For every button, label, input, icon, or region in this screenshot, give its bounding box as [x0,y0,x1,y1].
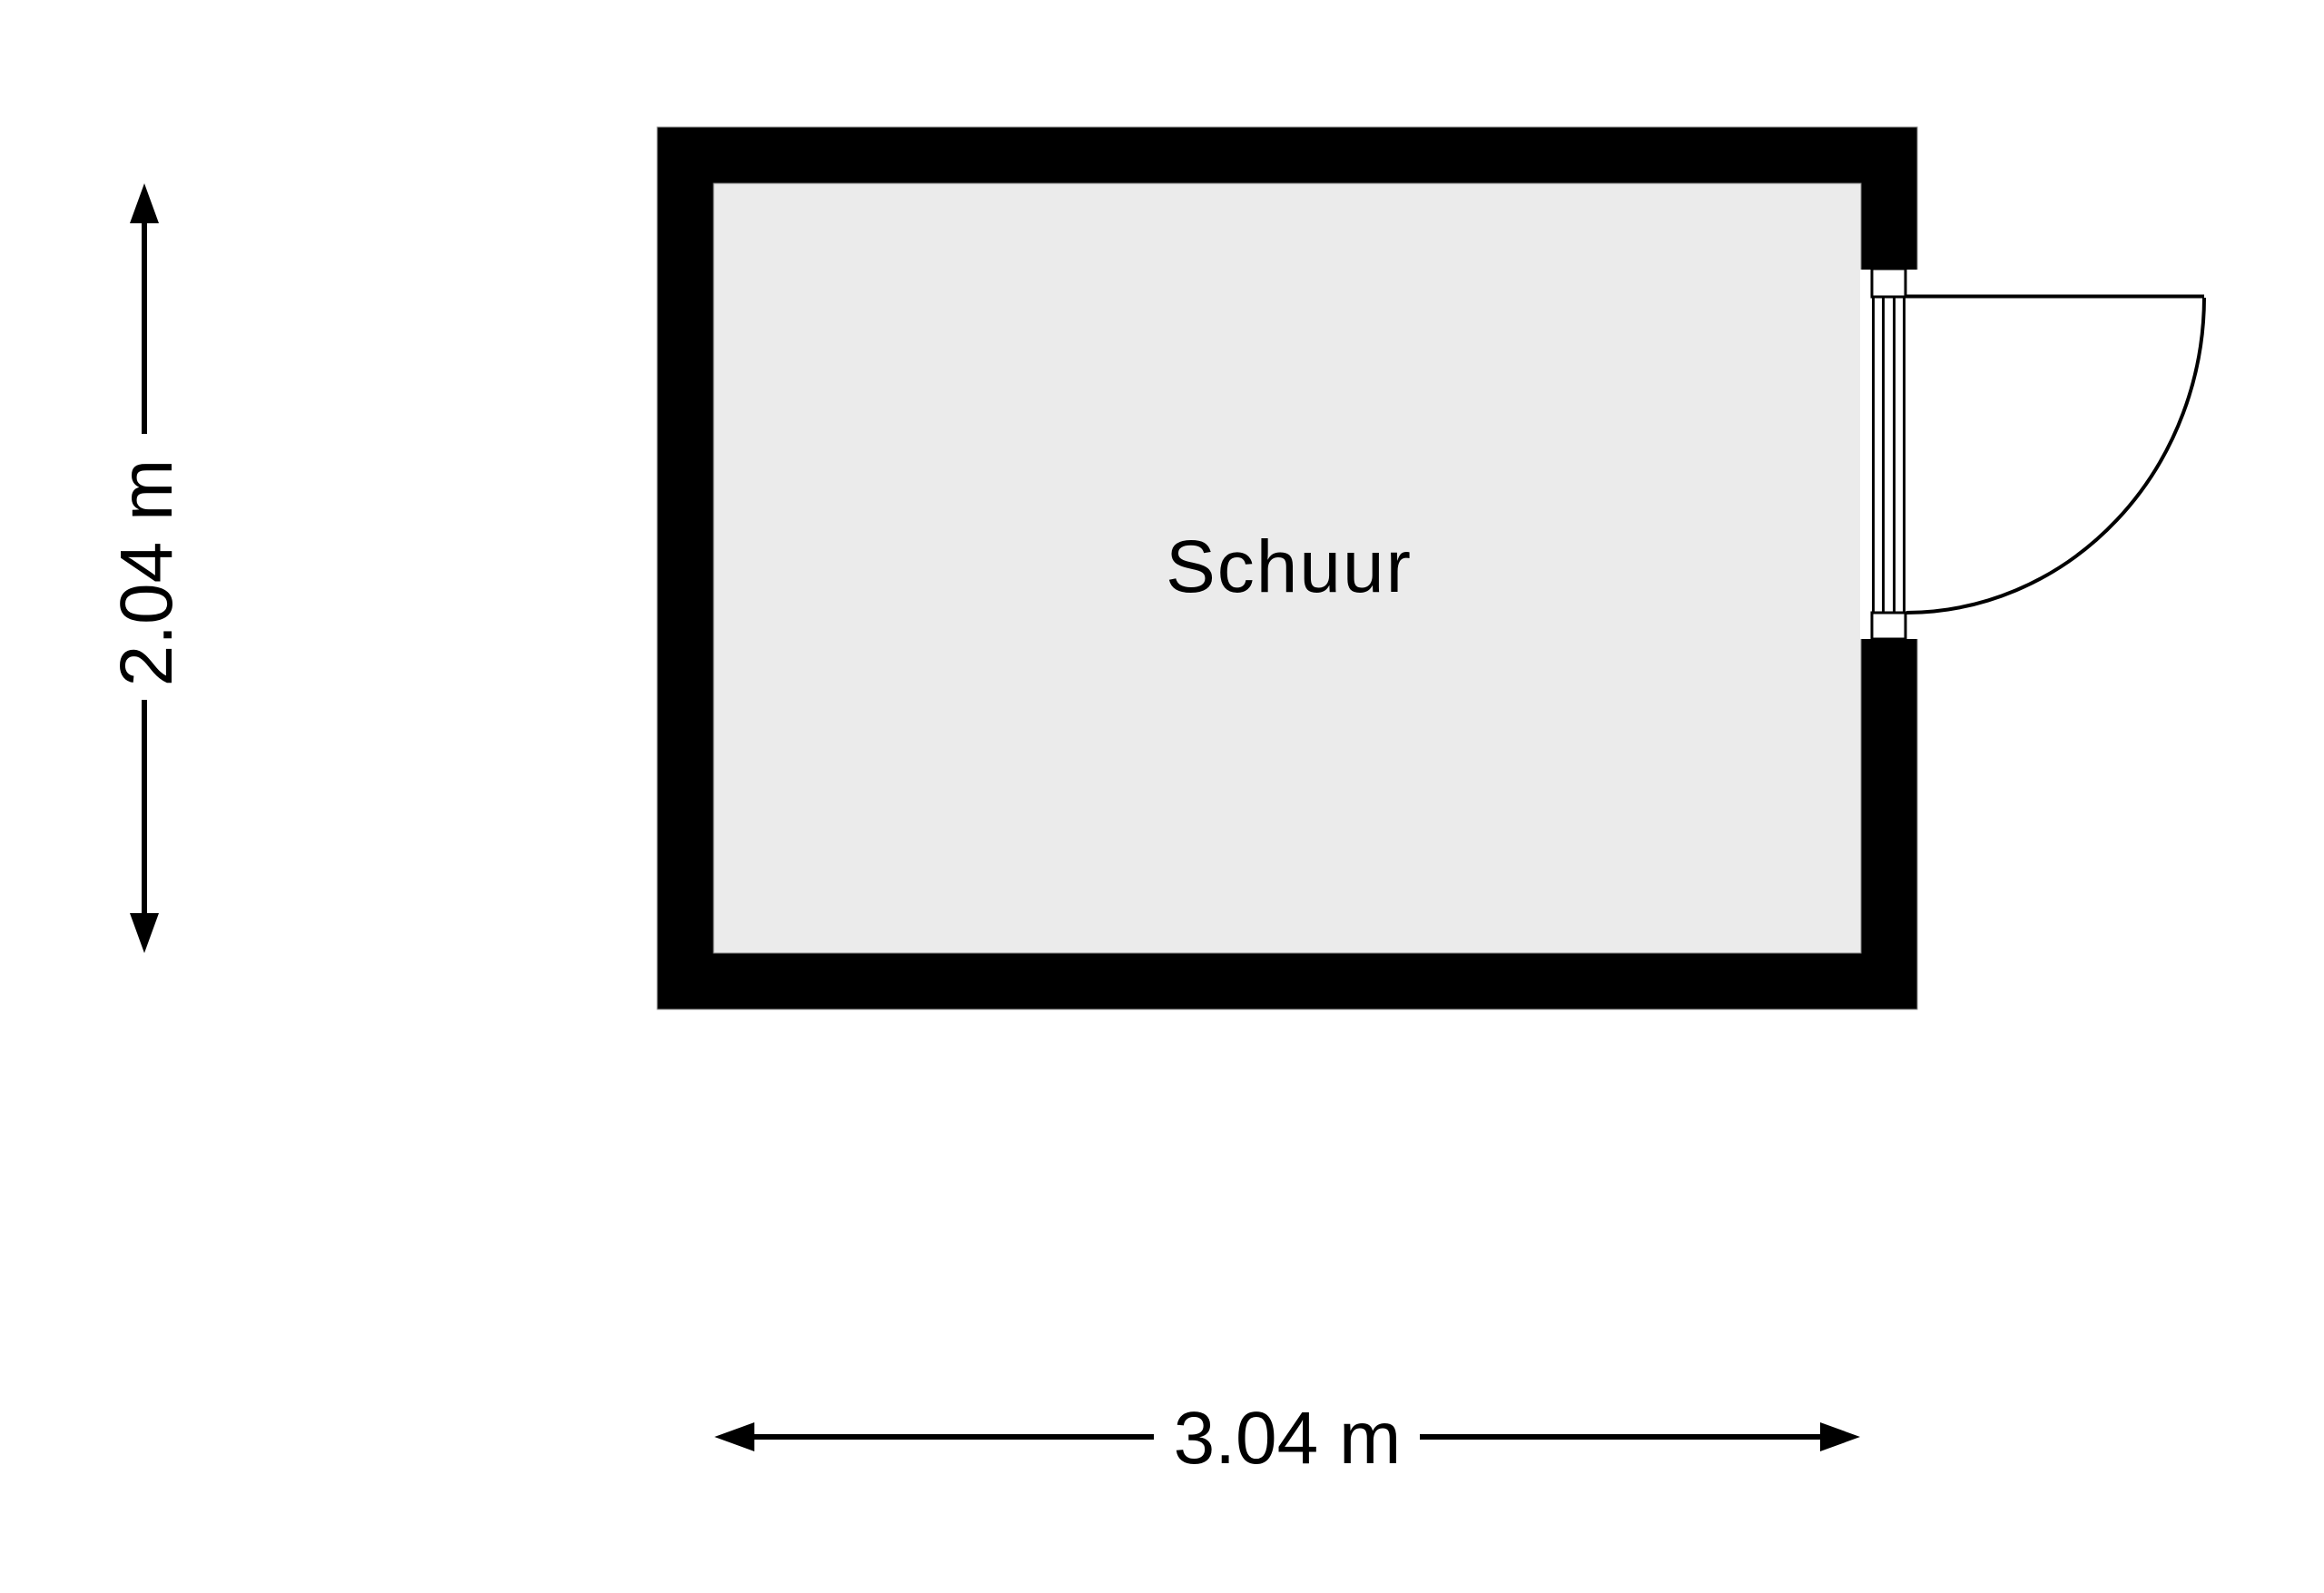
door-jamb-bottom [1872,613,1905,639]
vertical-dimension-label: 2.04 m [105,459,188,687]
floorplan-svg: Schuur 2.04 m 3.04 m [0,0,2324,1593]
room-label: Schuur [1166,526,1413,608]
arrowhead-down-icon [130,913,159,953]
horizontal-dimension-label: 3.04 m [1174,1397,1402,1480]
arrowhead-left-icon [714,1422,754,1451]
door-swing-icon [1872,269,2204,639]
arrowhead-right-icon [1820,1422,1860,1451]
arrowhead-up-icon [130,183,159,223]
horizontal-dimension: 3.04 m [714,1397,1860,1480]
door-opening [1860,270,1918,639]
door-swing-arc [1906,298,2204,613]
floorplan-canvas: Schuur 2.04 m 3.04 m [0,0,2324,1593]
shed-room: Schuur [657,127,2204,1009]
vertical-dimension: 2.04 m [105,183,188,953]
door-jamb-top [1872,269,1905,297]
